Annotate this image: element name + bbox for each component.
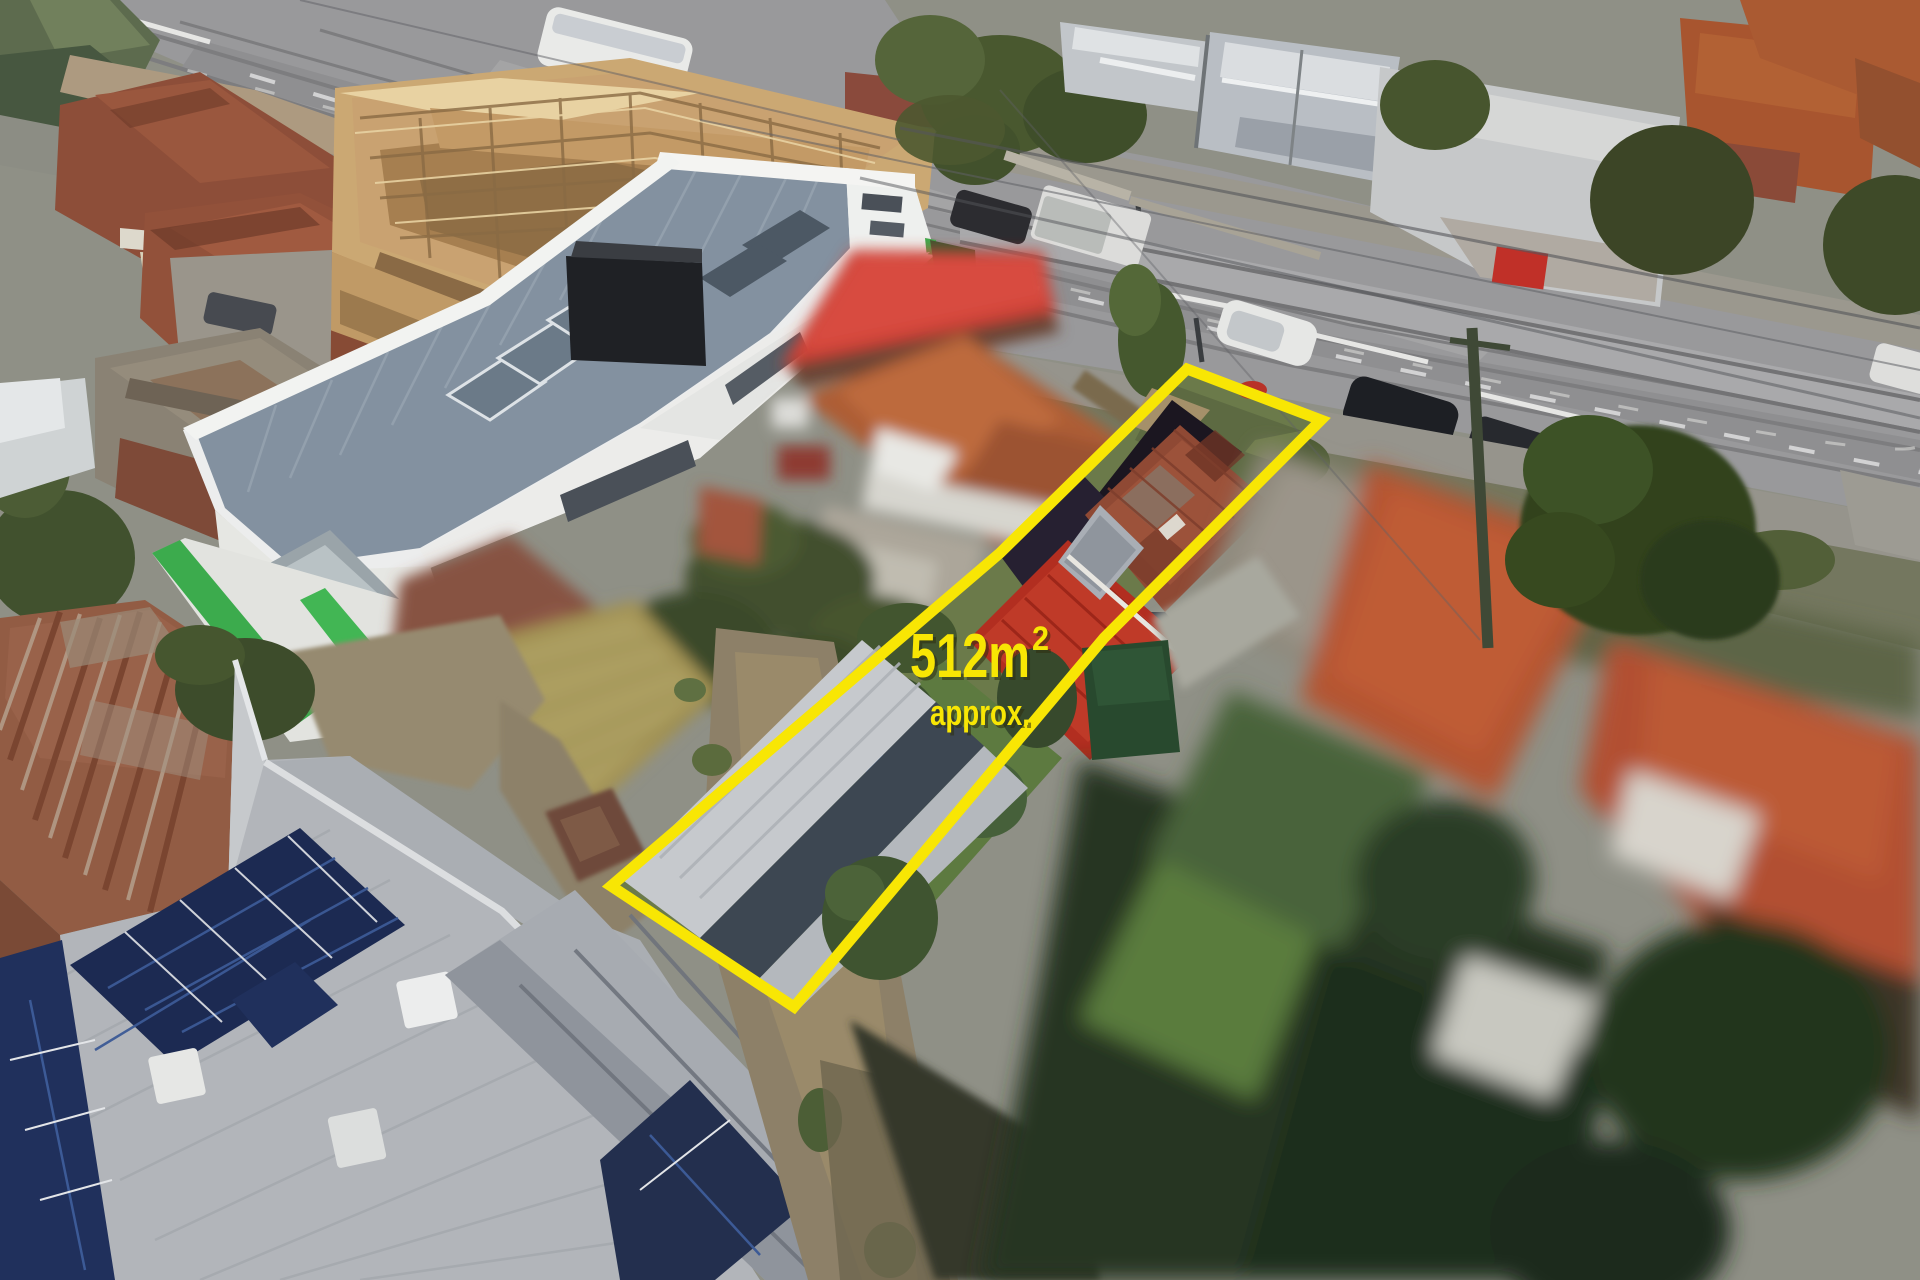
svg-text:512m: 512m <box>910 622 1030 691</box>
svg-text:2: 2 <box>1032 620 1049 658</box>
svg-text:approx.: approx. <box>930 692 1030 733</box>
